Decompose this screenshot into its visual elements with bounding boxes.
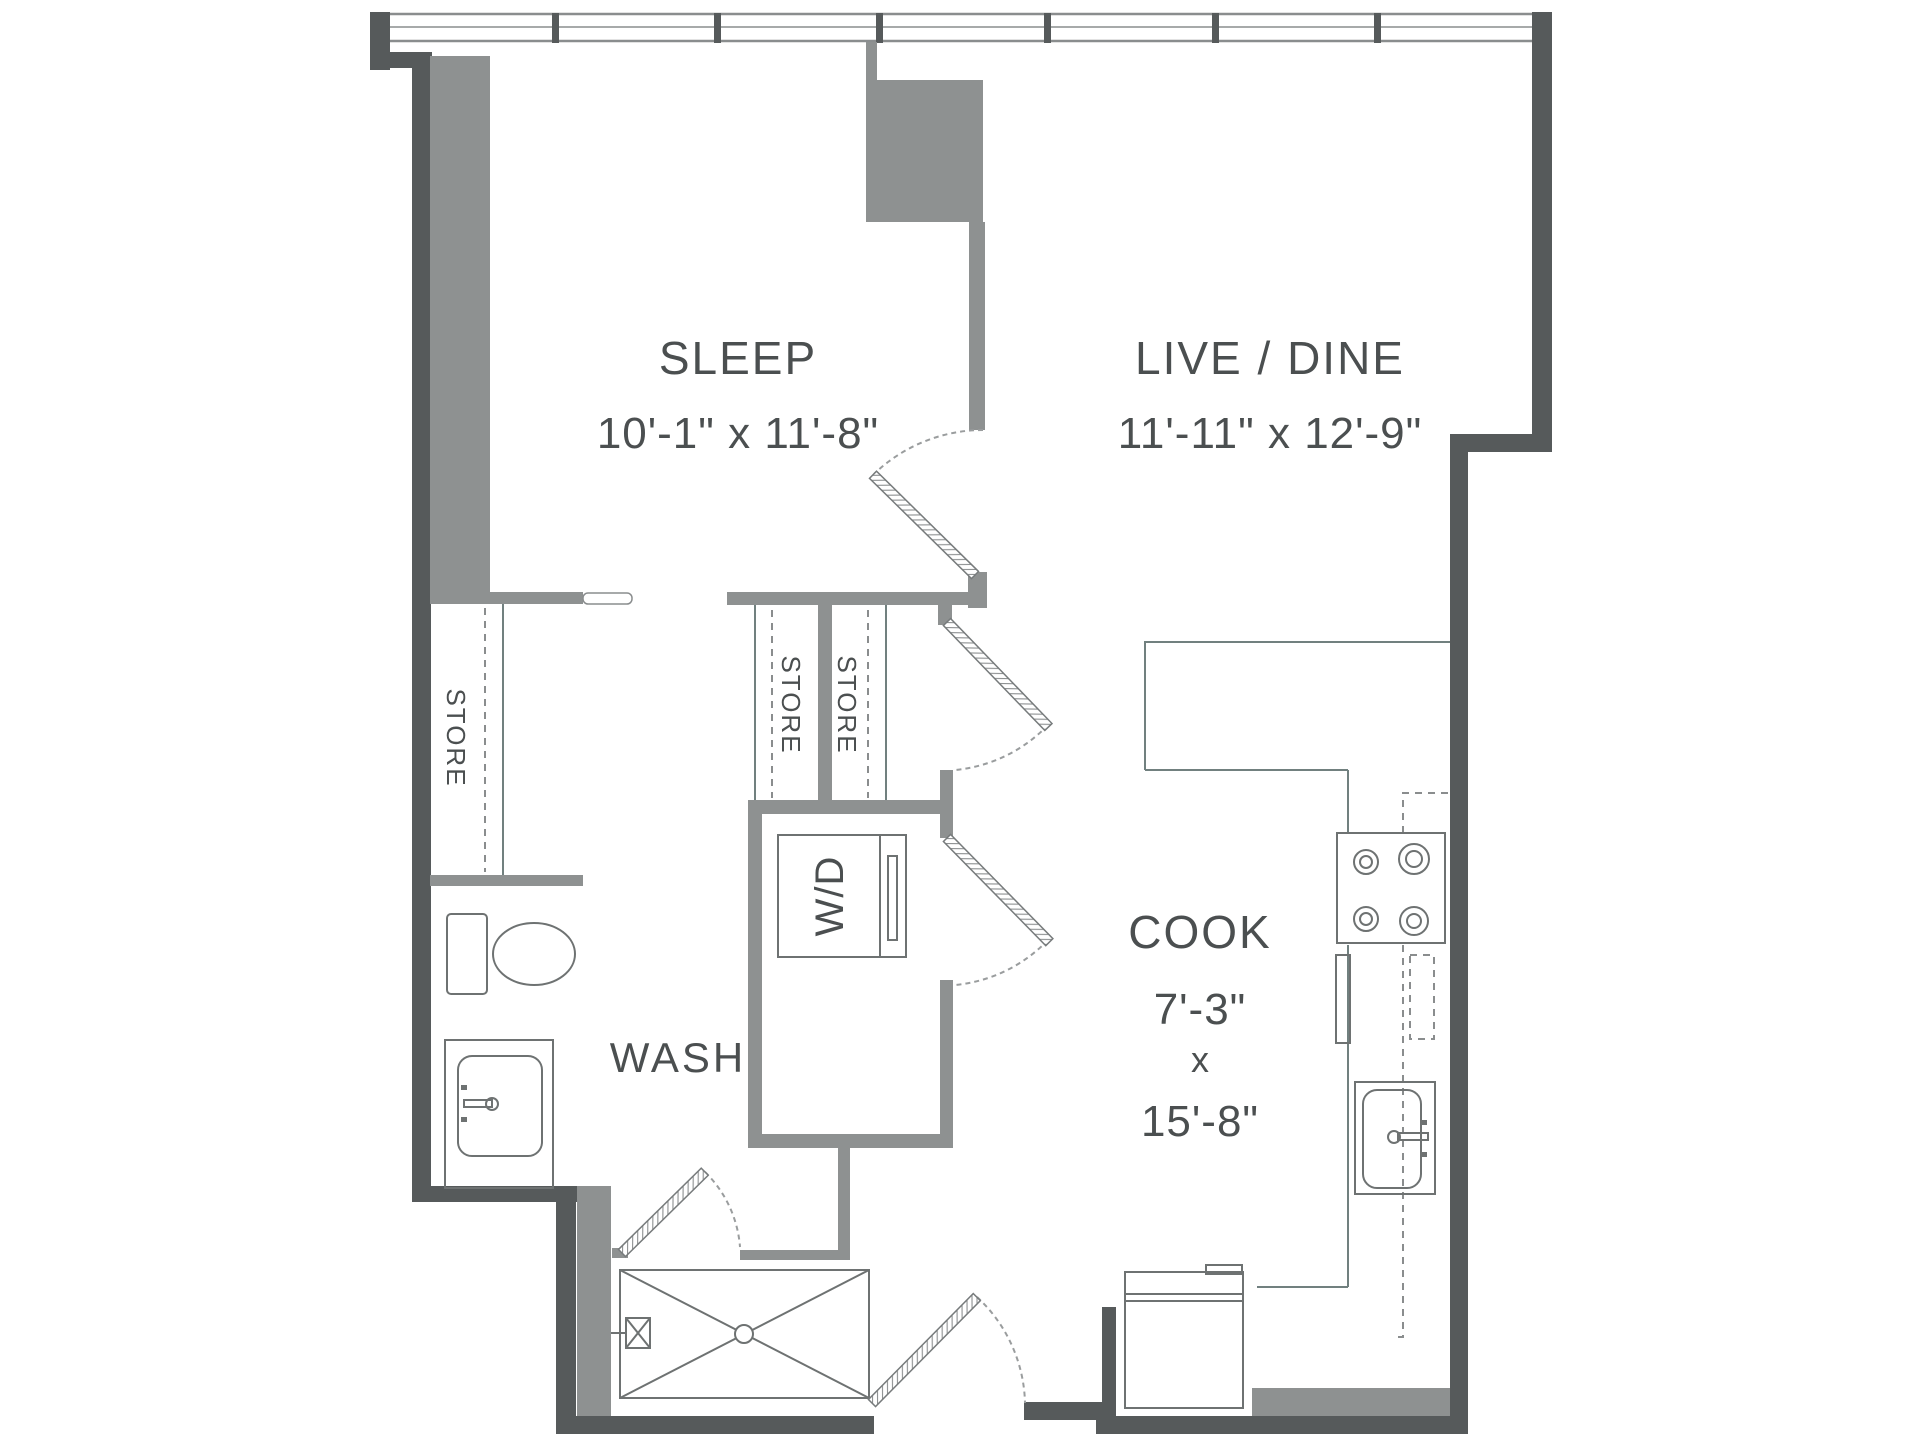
wd-closet-door — [943, 834, 1052, 985]
bottom-entry-right-wall — [1024, 1402, 1104, 1420]
cook-label: COOK — [1128, 906, 1271, 958]
wash-door — [618, 1168, 740, 1256]
exterior-walls — [370, 12, 1552, 1434]
wd-closet-bottom-wall — [748, 1134, 953, 1148]
store-label-sleep-closet: STORE — [441, 688, 471, 787]
bottom-wash-wall — [556, 1416, 874, 1434]
entry-door — [868, 1294, 1025, 1407]
kitchen-bottom-band — [1252, 1388, 1450, 1416]
cook-dim-length: 15'-8" — [1141, 1097, 1259, 1146]
sleep-dims: 10'-1" x 11'-8" — [597, 409, 879, 458]
store-label-hall-closet-1: STORE — [776, 655, 806, 754]
closet-top-wall-right — [727, 592, 987, 605]
wd-closet-left-wall — [748, 800, 762, 1148]
cook-dim-width: 7'-3" — [1154, 985, 1247, 1034]
toilet — [447, 914, 575, 994]
closet-divider-wall — [818, 605, 832, 801]
hall-door — [943, 619, 1052, 770]
room-labels: SLEEP 10'-1" x 11'-8" LIVE / DINE 11'-11… — [441, 332, 1422, 1146]
wd-closet-top-wall — [748, 800, 953, 814]
live-dine-label: LIVE / DINE — [1135, 332, 1405, 384]
bathroom-vanity — [445, 1040, 553, 1188]
upper-cabinet-dashed — [1403, 793, 1452, 833]
window-wall — [390, 13, 1532, 43]
sleep-closet-bottom-wall — [430, 875, 583, 886]
left-lower-wall — [556, 1186, 576, 1434]
wash-label: WASH — [610, 1034, 746, 1081]
entry-stub-wall — [1102, 1307, 1116, 1419]
wash-door-wall — [740, 1250, 850, 1260]
shower — [611, 1270, 869, 1398]
interior-walls — [430, 42, 1450, 1416]
cooktop — [1337, 833, 1445, 943]
burner — [1354, 844, 1429, 935]
wash-right-wall — [838, 1148, 850, 1260]
floor-plan-drawing: W/D — [0, 0, 1920, 1447]
floor-plan-page: W/D — [0, 0, 1920, 1447]
live-dine-dims: 11'-11" x 12'-9" — [1118, 409, 1423, 458]
partition-neck — [866, 42, 877, 86]
left-column — [430, 56, 490, 602]
window-mullions — [552, 13, 1381, 43]
shower-side-wall — [577, 1186, 611, 1416]
right-lower-wall — [1450, 434, 1468, 1434]
bottom-right-wall — [1096, 1416, 1468, 1434]
refrigerator — [1125, 1265, 1243, 1408]
bedroom-door — [870, 430, 983, 579]
closet-top-wall-left — [430, 592, 583, 604]
sleep-partition-wall — [969, 222, 985, 430]
cook-dim-sep: x — [1191, 1039, 1209, 1080]
store-label-hall-closet-2: STORE — [832, 655, 862, 754]
washer-dryer: W/D — [778, 835, 906, 957]
partition-column — [866, 80, 983, 222]
dishwasher-dashed — [1410, 955, 1434, 1039]
sleep-label: SLEEP — [659, 332, 817, 384]
sliding-door-leaf — [583, 593, 632, 604]
left-wall — [412, 60, 431, 1200]
right-upper-wall — [1532, 12, 1552, 452]
wd-closet-right-wall — [940, 980, 953, 1148]
vanity-faucet — [461, 1085, 498, 1122]
kitchen-sink — [1355, 1082, 1435, 1194]
washer-dryer-label: W/D — [808, 856, 852, 937]
